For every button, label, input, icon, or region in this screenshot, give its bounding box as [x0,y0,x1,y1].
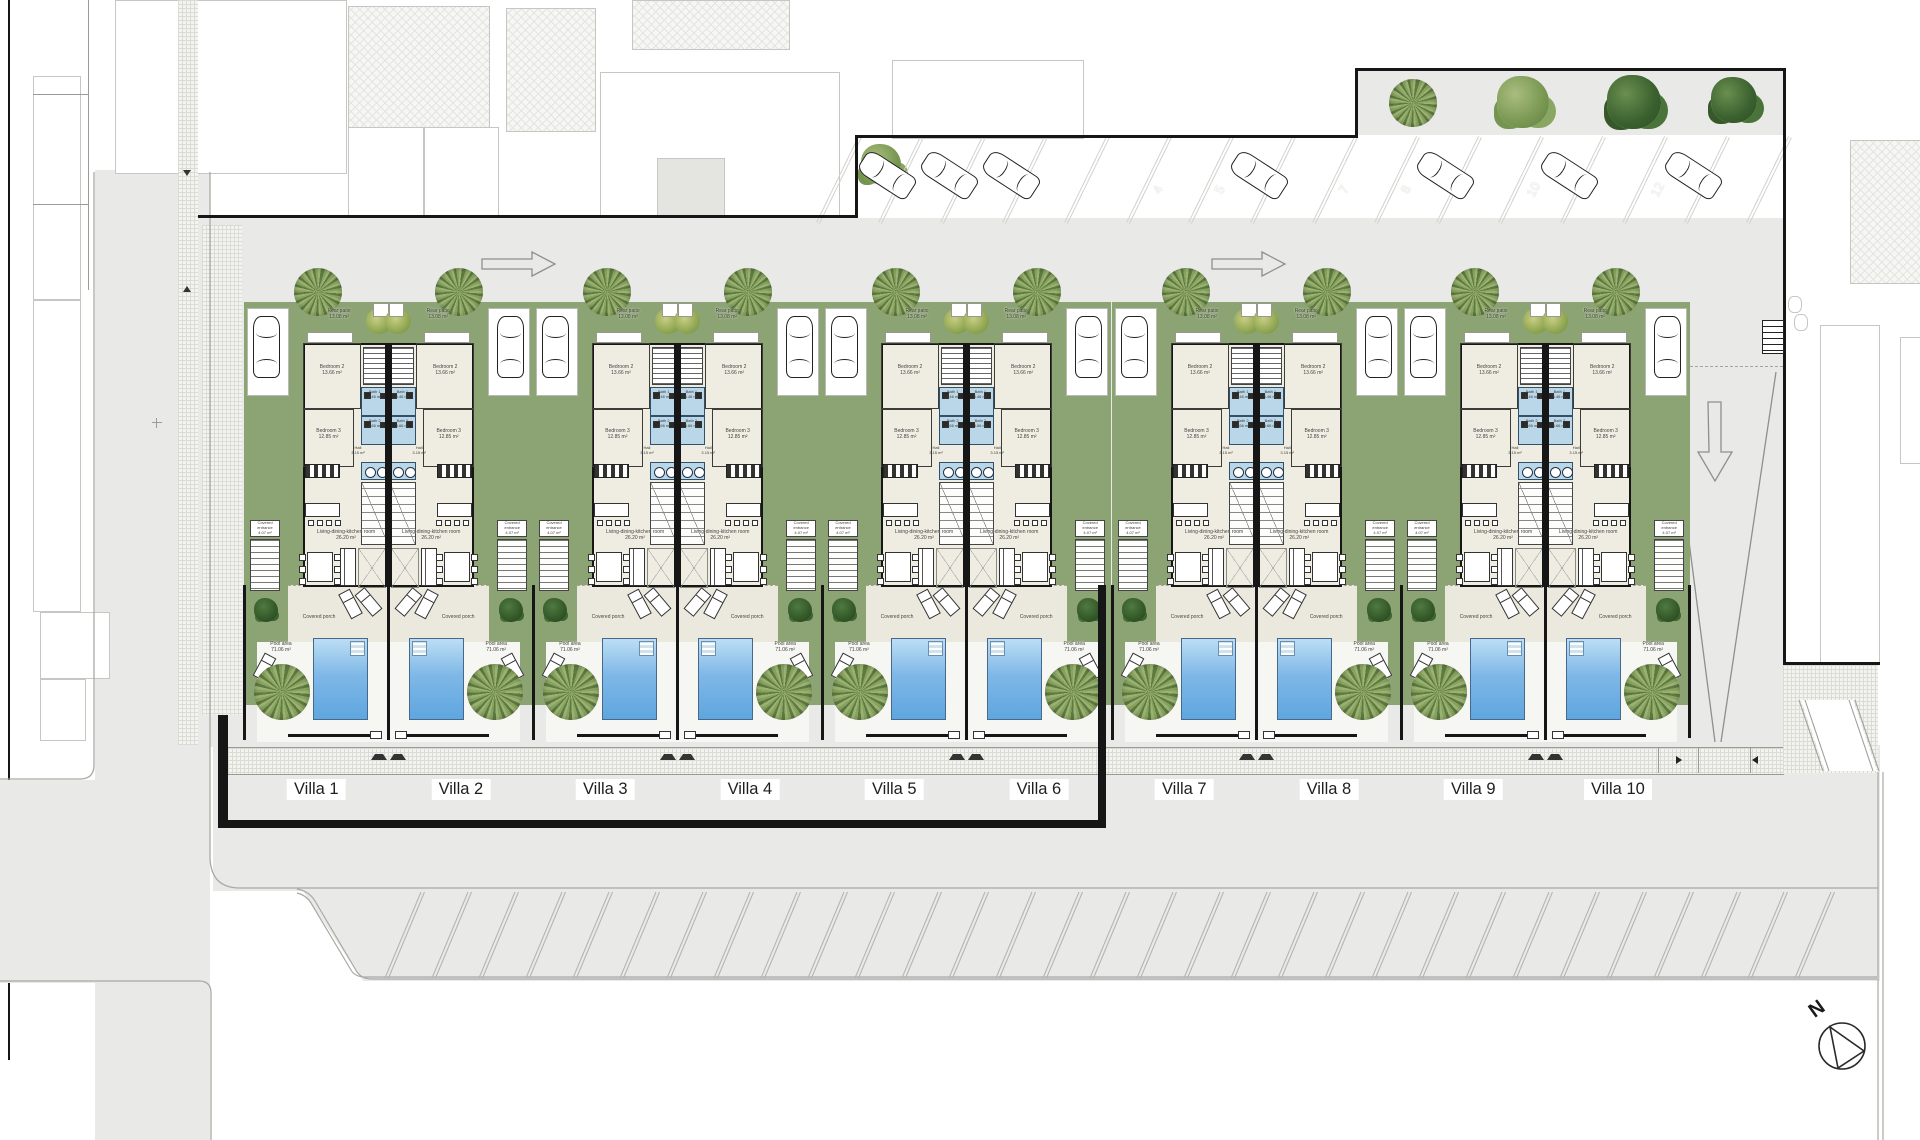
entrance-label: Covered entrance4.07 m² [250,521,280,535]
bedroom2-label: Bedroom 213.66 m² [420,364,470,377]
parking-divider [1374,136,1420,224]
garden-wall [821,585,824,740]
parking-divider [1312,136,1358,224]
roof-box [1546,303,1562,317]
front-wall [1564,734,1646,737]
gate-arrow-icon [679,748,695,760]
building-outline [892,60,1084,139]
chair-icon [725,554,732,561]
kitchen-counter [437,464,472,478]
chair-icon [877,554,884,561]
parking-space-number: 5 [1211,183,1228,196]
utility-room [1546,462,1574,480]
villa-label: Villa 8 [1300,779,1359,800]
chair-icon [1593,578,1600,585]
gate-arrow-icon [1239,748,1255,760]
pool-label: Pool area71.06 m² [1415,641,1461,654]
bath1-label: Bath 15.46 m² [389,390,417,400]
pool-label: Pool area71.06 m² [1126,641,1172,654]
stool-icon [1203,520,1209,526]
pool-steps [701,641,716,656]
bath2-label: Bath 23.66 m² [389,419,417,429]
entrance-steps [1118,539,1148,591]
utility-cap [1794,314,1808,331]
rug [1548,548,1576,588]
hall-label: Hall3.15 m² [399,446,439,456]
villa-label: Villa 10 [1584,779,1652,800]
living-label: Living-dining-kitchen room26.20 m² [677,529,763,542]
roof-box [1257,303,1273,317]
chair-icon [1014,566,1021,573]
chair-icon [1456,554,1463,561]
dining-table [1022,552,1048,582]
pool-steps [1218,641,1233,656]
sidewalk-east-end [1783,665,1878,773]
parking-divider [1498,136,1544,224]
pool-steps [1569,641,1584,656]
dark-tree-icon [543,598,567,622]
porch-label: Covered porch [712,614,782,620]
garden-wall [243,585,246,740]
kitchen-counter [1305,464,1340,478]
survey-cross [156,418,157,428]
stool-icon [615,520,621,526]
sofa [999,548,1015,586]
bedroom2-label: Bedroom 213.66 m² [307,364,357,377]
sofa [918,548,934,586]
chair-icon [760,566,767,573]
party-wall [674,343,681,587]
entrance-steps [786,539,816,591]
dining-table [1601,552,1627,582]
entrance-label: Covered entrance4.07 m² [1654,521,1684,535]
chair-icon [436,554,443,561]
porch-label: Covered porch [1441,614,1511,620]
boundary-east-bottom [1786,662,1880,665]
direction-arrow-icon [1676,756,1682,764]
villa-label: Villa 5 [865,779,924,800]
stool-icon [1602,520,1608,526]
stool-icon [1185,520,1191,526]
rear_patio-label: Rear patio13.08 m² [1469,308,1523,321]
chair-icon [1304,566,1311,573]
bedroom2-label: Bedroom 213.66 m² [1464,364,1514,377]
parked-car [786,316,813,378]
entrance-steps [1075,539,1105,591]
villa-label: Villa 4 [721,779,780,800]
stool-icon [1620,520,1626,526]
utility-room [1257,462,1285,480]
garden-wall [1544,587,1547,740]
palm-tree-icon [1624,664,1680,720]
dining-table [1312,552,1338,582]
parking-space-number: 7 [1335,183,1352,196]
front-wall [407,734,489,737]
chair-icon [1339,554,1346,561]
parking-space-number: 10 [1523,180,1543,200]
kitchen-counter [1173,464,1208,478]
phase-boundary-mid [1098,585,1106,828]
villa-unit-4: Rear patio13.08 m²Bedroom 213.66 m²Bedro… [678,302,823,747]
bedroom3-label: Bedroom 312.85 m² [305,428,352,441]
kitchen-island [305,503,340,517]
sofa [710,548,726,586]
hall-label: Hall3.15 m² [1556,446,1596,456]
entrance-label: Covered entrance4.07 m² [786,521,816,535]
living-label: Living-dining-kitchen room26.20 m² [388,529,474,542]
chair-icon [471,578,478,585]
sofa [421,548,437,586]
living-label: Living-dining-kitchen room26.20 m² [303,529,389,542]
upper-stairs [363,347,387,385]
building-outline [424,127,499,217]
garden-wall [676,587,679,740]
gate-arrow-icon [1547,748,1563,760]
chair-icon [1593,566,1600,573]
rear_patio-label: Rear patio13.08 m² [411,308,465,321]
entrance-label: Covered entrance4.07 m² [539,521,569,535]
parked-car [1075,316,1102,378]
dining-table [444,552,470,582]
sofa [1497,548,1513,586]
porch-label: Covered porch [573,614,643,620]
bedroom3-label: Bedroom 312.85 m² [1462,428,1509,441]
front-wall [577,734,659,737]
kitchen-counter [883,464,918,478]
chair-icon [1628,554,1635,561]
garden-wall [1688,585,1691,738]
bedroom2-label: Bedroom 213.66 m² [709,364,759,377]
stool-icon [624,520,630,526]
utility-cap [1788,296,1802,313]
rear_patio-label: Rear patio13.08 m² [890,308,944,321]
pool-steps [1507,641,1522,656]
sofa [1578,548,1594,586]
kitchen-island [1594,503,1629,517]
stool-icon [445,520,451,526]
rear_patio-label: Rear patio13.08 m² [1568,308,1622,321]
pool-steps [1280,641,1295,656]
entrance-label: Covered entrance4.07 m² [1075,521,1105,535]
stool-icon [454,520,460,526]
dining-table [307,552,333,582]
dark-tree-icon [254,598,278,622]
bath2-label: Bath 23.66 m² [1546,419,1574,429]
front-wall [696,734,778,737]
kitchen-island [1173,503,1208,517]
garden-wall [532,585,535,740]
villa-unit-9: Rear patio13.08 m²Bedroom 213.66 m²Bedro… [1401,302,1546,747]
gate-arrow-icon [660,748,676,760]
living-label: Living-dining-kitchen room26.20 m² [1171,529,1257,542]
dark-tree-icon [832,598,856,622]
front-wall [985,734,1067,737]
living-label: Living-dining-kitchen room26.20 m² [1545,529,1631,542]
roof-box [678,303,694,317]
chair-icon [1628,578,1635,585]
chair-icon [436,566,443,573]
villa-unit-8: Rear patio13.08 m²Bedroom 213.66 m²Bedro… [1257,302,1402,747]
front-gate [1263,731,1275,739]
chair-icon [1456,566,1463,573]
villa-block-2: Rear patio13.08 m²Bedroom 213.66 m²Bedro… [533,302,822,747]
villa-unit-3: Rear patio13.08 m²Bedroom 213.66 m²Bedro… [533,302,678,747]
lane-line [88,0,89,290]
party-wall [1253,343,1260,587]
stool-icon [1023,520,1029,526]
stool-icon [606,520,612,526]
sidewalk-west-outer [178,0,198,745]
villa-label: Villa 6 [1010,779,1069,800]
stool-icon [1313,520,1319,526]
stool-icon [1041,520,1047,526]
chair-icon [588,566,595,573]
building-hatched [1850,140,1920,284]
bedroom3-label: Bedroom 312.85 m² [714,428,761,441]
kitchen-island [883,503,918,517]
front-wall [288,734,370,737]
front-gate [1552,731,1564,739]
gate-arrow-icon [390,748,406,760]
stool-icon [326,520,332,526]
parking-row: 45781012 [858,136,1784,226]
stool-icon [886,520,892,526]
dining-table [1464,552,1490,582]
rear_patio-label: Rear patio13.08 m² [601,308,655,321]
kitchen-island [1015,503,1050,517]
garden-wall [965,587,968,740]
parked-car [1121,316,1148,378]
chair-icon [1167,578,1174,585]
palm-tree-icon [254,664,310,720]
bedroom3-label: Bedroom 312.85 m² [1293,428,1340,441]
sofa [340,548,356,586]
roof-slab [596,332,642,343]
curb-bay [40,679,86,741]
chair-icon [877,566,884,573]
entrance-label: Covered entrance4.07 m² [1118,521,1148,535]
front-wall [1445,734,1527,737]
stool-icon [1331,520,1337,526]
road-horizontal-west [0,780,210,983]
bedroom3-label: Bedroom 312.85 m² [883,428,930,441]
parked-car [831,316,858,378]
sidewalk-joint [1750,747,1751,773]
rug [1259,548,1287,588]
building-outline [1900,337,1920,464]
direction-arrow-icon [183,170,191,176]
pool-label: Pool area71.06 m² [258,641,304,654]
bedroom3-label: Bedroom 312.85 m² [1173,428,1220,441]
kitchen-counter [1594,464,1629,478]
garden-wall [1400,585,1403,740]
compass [1819,1023,1865,1069]
entrance-label: Covered entrance4.07 m² [1365,521,1395,535]
dining-table [885,552,911,582]
upper-stairs [679,347,703,385]
living-label: Living-dining-kitchen room26.20 m² [966,529,1052,542]
roof-box [967,303,983,317]
sidewalk-joint [1698,747,1699,773]
curb-bay [40,612,110,679]
curb-bay [33,76,81,300]
stool-icon [743,520,749,526]
villa-label: Villa 3 [576,779,635,800]
parking-divider [1622,136,1668,224]
utility-box [1762,320,1784,354]
kitchen-counter [726,464,761,478]
gate-arrow-icon [1258,748,1274,760]
porch-label: Covered porch [284,614,354,620]
villa-unit-2: Rear patio13.08 m²Bedroom 213.66 m²Bedro… [389,302,534,747]
boundary-treestrip-west [1355,68,1358,138]
chair-icon [725,566,732,573]
chair-icon [1167,566,1174,573]
rug [647,548,675,588]
party-wall [963,343,970,587]
kitchen-island [726,503,761,517]
front-wall [1156,734,1238,737]
bath1-label: Bath 15.46 m² [1257,390,1285,400]
kitchen-island [594,503,629,517]
chair-icon [436,578,443,585]
front-wall [866,734,948,737]
upper-stairs [968,347,992,385]
parked-car [542,316,569,378]
boundary-east [1783,68,1786,665]
lane-tick [33,204,88,205]
chair-icon [1167,554,1174,561]
chair-icon [299,554,306,561]
dining-table [733,552,759,582]
roof-slab [1002,332,1048,343]
bedroom3-label: Bedroom 312.85 m² [594,428,641,441]
stool-icon [1492,520,1498,526]
stool-icon [1304,520,1310,526]
porch-label: Covered porch [862,614,932,620]
hall-label: Hall3.15 m² [977,446,1017,456]
rear_patio-label: Rear patio13.08 m² [1180,308,1234,321]
gate-arrow-icon [949,748,965,760]
entrance-label: Covered entrance4.07 m² [497,521,527,535]
chair-icon [588,554,595,561]
front-wall [1275,734,1357,737]
rug [391,548,419,588]
bath1-label: Bath 15.46 m² [967,390,995,400]
parking-divider [1064,136,1110,224]
front-gate [395,731,407,739]
pool-label: Pool area71.06 m² [473,641,519,654]
dining-table [1175,552,1201,582]
roof-box [389,303,405,317]
hall-label: Hall3.15 m² [916,446,956,456]
garden-wall [1111,585,1114,740]
stool-icon [335,520,341,526]
upper-stairs [941,347,965,385]
chair-icon [760,578,767,585]
bath2-label: Bath 23.66 m² [678,419,706,429]
bedroom2-label: Bedroom 213.66 m² [1175,364,1225,377]
bedroom3-label: Bedroom 312.85 m² [1582,428,1629,441]
porch-label: Covered porch [1152,614,1222,620]
pool-label: Pool area71.06 m² [762,641,808,654]
palm-tree-icon [543,664,599,720]
rear_patio-label: Rear patio13.08 m² [312,308,366,321]
chair-icon [1456,578,1463,585]
stool-icon [725,520,731,526]
entrance-steps [539,539,569,591]
bath2-label: Bath 23.66 m² [1257,419,1285,429]
chair-icon [299,578,306,585]
kitchen-island [1462,503,1497,517]
chair-icon [471,566,478,573]
stool-icon [1465,520,1471,526]
hall-label: Hall3.15 m² [1206,446,1246,456]
kitchen-counter [594,464,629,478]
living-label: Living-dining-kitchen room26.20 m² [881,529,967,542]
dark-tree-icon [788,598,812,622]
pool-steps [928,641,943,656]
stool-icon [463,520,469,526]
pool-label: Pool area71.06 m² [1051,641,1097,654]
dining-table [596,552,622,582]
bath2-label: Bath 23.66 m² [967,419,995,429]
stool-icon [752,520,758,526]
stool-icon [597,520,603,526]
villa-label: Villa 2 [432,779,491,800]
roof-slab [424,332,470,343]
building-hatched [632,0,790,50]
bath1-label: Bath 15.46 m² [678,390,706,400]
site-plan: 45781012 [0,0,1920,1140]
stool-icon [1593,520,1599,526]
front-gate [948,731,960,739]
chair-icon [1339,566,1346,573]
entrance-steps [1365,539,1395,591]
utility-room [389,462,417,480]
entrance-steps [1407,539,1437,591]
porch-label: Covered porch [423,614,493,620]
palm-tree-icon [1411,664,1467,720]
stool-icon [1014,520,1020,526]
roof-slab [1464,332,1510,343]
parking-divider [1126,136,1172,224]
porch-label: Covered porch [1291,614,1361,620]
stool-icon [317,520,323,526]
sidewalk-joint [1658,747,1659,773]
building-hatched [348,6,490,128]
front-gate [973,731,985,739]
bedroom2-label: Bedroom 213.66 m² [998,364,1048,377]
hall-label: Hall3.15 m² [338,446,378,456]
stool-icon [1032,520,1038,526]
palm-tree-icon [467,664,523,720]
villa-block-3: Rear patio13.08 m²Bedroom 213.66 m²Bedro… [822,302,1111,747]
bedroom3-label: Bedroom 312.85 m² [1003,428,1050,441]
rug [1515,548,1543,588]
palm-tree-icon [832,664,888,720]
parking-space-number: 8 [1397,183,1414,196]
roof-slab [885,332,931,343]
pool-label: Pool area71.06 m² [1630,641,1676,654]
parking-space-number: 4 [1149,183,1166,196]
pool-steps [412,641,427,656]
utility-room [967,462,995,480]
chair-icon [760,554,767,561]
bedroom3-label: Bedroom 312.85 m² [425,428,472,441]
dark-tree-icon [1411,598,1435,622]
stool-icon [1611,520,1617,526]
